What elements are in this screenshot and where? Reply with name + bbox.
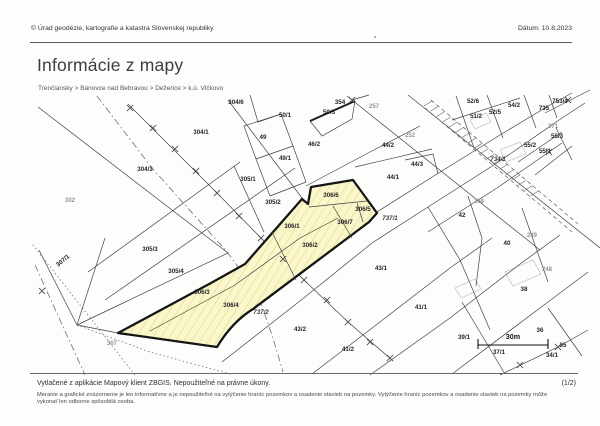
parcel-label: 306/1 [284, 223, 300, 230]
parcel-label: 737/2 [253, 309, 269, 316]
parcel-label: 307/1 [55, 253, 72, 269]
parcel-label: 44/2 [382, 142, 395, 149]
parcel-label: 38 [521, 286, 528, 293]
parcel-label: 305/4 [168, 268, 184, 275]
parcel-label: 305/3 [142, 246, 158, 253]
background-raster-buildings [455, 113, 541, 298]
print-date: Dátum: 10.8.2023 [518, 25, 572, 32]
parcel-label: 41/2 [342, 346, 355, 353]
parcel-label: 55/1 [539, 148, 552, 155]
header-divider [30, 42, 572, 43]
map-layer-label: 249 [527, 233, 538, 239]
scale-label: 30m [506, 332, 520, 341]
scan-artifact-dot [374, 36, 376, 38]
parcel-label: 306/2 [302, 242, 318, 249]
parcel-label: 35 [560, 342, 567, 349]
parcel-label: 734/1 [490, 156, 506, 163]
page-number: (1/2) [562, 380, 576, 387]
parcel-label: 54/2 [508, 102, 521, 109]
parcel-label: 52/5 [489, 109, 502, 116]
parcel-label: 50/3 [323, 109, 336, 116]
parcel-label: 737/1 [382, 215, 398, 222]
parcel-label: 52/6 [467, 98, 480, 105]
parcel-label: 354 [335, 99, 346, 106]
parcel-label: 55/3 [551, 133, 564, 140]
parcel-label: 304/6 [228, 99, 244, 106]
parcel-label: 51/2 [470, 113, 483, 120]
parcel-label: 753/4 [552, 98, 568, 105]
map-layer-label: 307 [107, 341, 118, 347]
parcel-label: 39/1 [458, 334, 471, 341]
page-title: Informácie z mapy [37, 55, 183, 76]
map-layer-label: 248 [542, 267, 553, 273]
printed-map-page: 304/6304/1304/3305/1305/2305/3305/4306/1… [0, 0, 600, 426]
parcel-label: 306/7 [337, 219, 353, 226]
parcel-label: 36 [537, 327, 544, 334]
parcel-label: 306/5 [355, 206, 371, 213]
footer-printed-text: Vytlačené z aplikácie Mapový klient ZBGI… [37, 380, 270, 387]
map-layer-label: 252 [405, 133, 416, 139]
parcel-label: 55/2 [524, 142, 537, 149]
parcel-label: 50/1 [279, 112, 292, 119]
footer-disclaimer: Meranie a grafické znázornenie je len in… [37, 392, 555, 406]
highlighted-parcel-block[interactable] [118, 180, 377, 347]
parcel-label: 42 [459, 212, 466, 219]
parcel-label: 306/6 [323, 192, 339, 199]
parcel-label: 49 [260, 134, 267, 141]
parcel-label: 44/1 [387, 174, 400, 181]
parcel-label: 305/2 [265, 199, 281, 206]
parcel-label: 304/3 [137, 166, 153, 173]
parcel-label: 34/1 [546, 352, 559, 359]
parcel-label: 37/1 [493, 349, 506, 356]
footer-divider [30, 373, 578, 374]
parcel-label: 305/1 [240, 176, 256, 183]
parcel-label: 40 [504, 240, 511, 247]
parcel-label: 46/2 [308, 141, 321, 148]
parcel-label: 304/1 [193, 129, 209, 136]
parcel-label: 43/2 [294, 326, 307, 333]
parcel-label: 306/3 [194, 289, 210, 296]
map-layer-label: 257 [369, 104, 380, 110]
map-layer-label: 302 [65, 198, 76, 204]
map-layer-label: 258 [474, 199, 485, 205]
parcel-label: 44/3 [411, 161, 424, 168]
parcel-label: 306/4 [223, 302, 239, 309]
parcel-label: 41/1 [415, 304, 428, 311]
breadcrumb: Trenčiansky > Bánovce nad Bebravou > Dež… [38, 85, 223, 92]
map-layer-label: 271 [548, 124, 559, 130]
copyright-text: © Úrad geodézie, kartografie a katastra … [31, 25, 214, 32]
parcel-label: 735 [539, 105, 550, 112]
parcel-label: 49/1 [279, 155, 292, 162]
parcel-label: 43/1 [375, 265, 388, 272]
